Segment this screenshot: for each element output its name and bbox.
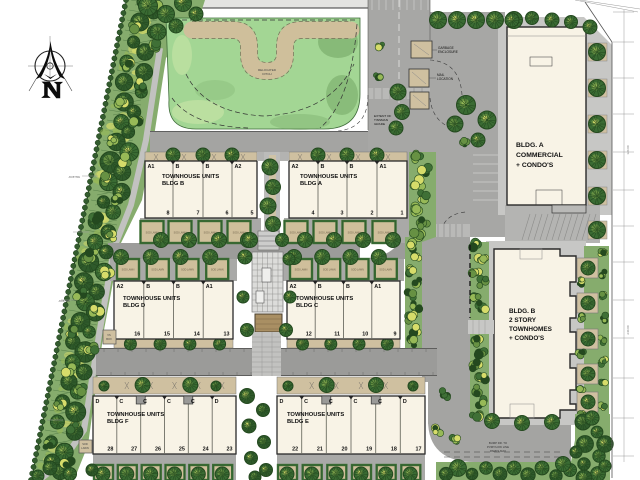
svg-text:C: C [143, 399, 147, 405]
svg-text:DITCH: DITCH [262, 72, 271, 76]
svg-text:6: 6 [226, 211, 229, 217]
svg-text:TOWNHOUSE UNITS: TOWNHOUSE UNITS [123, 296, 180, 302]
svg-text:B: B [176, 284, 180, 290]
svg-text:GRADE: GRADE [374, 122, 385, 126]
svg-text:A1: A1 [374, 284, 381, 290]
svg-text:TOWNHOUSE UNITS: TOWNHOUSE UNITS [300, 174, 357, 180]
svg-text:10: 10 [362, 332, 368, 338]
svg-text:BLDG E: BLDG E [287, 419, 309, 425]
svg-text:21: 21 [317, 447, 323, 453]
svg-text:B: B [146, 284, 150, 290]
svg-text:BLDG D: BLDG D [123, 303, 145, 309]
svg-text:D: D [96, 399, 100, 405]
svg-text:C: C [304, 399, 308, 405]
svg-text:BLDG. A: BLDG. A [516, 142, 544, 149]
svg-text:TOWNHOUSE UNITS: TOWNHOUSE UNITS [107, 412, 164, 418]
svg-text:TOWNHOUSE UNITS: TOWNHOUSE UNITS [162, 174, 219, 180]
svg-text:VS: VS [107, 333, 111, 337]
svg-text:BLDG. B: BLDG. B [509, 308, 536, 315]
svg-text:20: 20 [342, 447, 348, 453]
svg-text:A1: A1 [148, 164, 155, 170]
svg-text:B: B [346, 284, 350, 290]
svg-text:COMMERCIAL: COMMERCIAL [516, 152, 563, 159]
svg-text:B: B [321, 164, 325, 170]
svg-text:B: B [350, 164, 354, 170]
svg-text:BLDG A: BLDG A [300, 181, 323, 187]
svg-text:7: 7 [197, 211, 200, 217]
svg-text:18: 18 [391, 447, 397, 453]
svg-text:17: 17 [416, 447, 422, 453]
svg-text:3: 3 [341, 211, 344, 217]
svg-text:SOD LAWN: SOD LAWN [211, 269, 224, 272]
svg-text:28: 28 [107, 447, 113, 453]
svg-text:240.00: 240.00 [626, 325, 630, 335]
svg-text:D: D [280, 399, 284, 405]
svg-text:LAWN: LAWN [81, 446, 89, 450]
svg-text:+ CONDO'S: + CONDO'S [516, 162, 554, 169]
svg-text:D: D [215, 399, 219, 405]
svg-text:PARKS MAX: PARKS MAX [490, 449, 506, 453]
svg-text:A2: A2 [235, 164, 242, 170]
svg-text:27: 27 [131, 447, 137, 453]
svg-text:SOD: SOD [82, 442, 88, 446]
svg-text:2: 2 [371, 211, 374, 217]
svg-text:A1: A1 [380, 164, 387, 170]
svg-text:120.00: 120.00 [626, 145, 630, 155]
svg-text:TOWNHOMES: TOWNHOMES [509, 326, 553, 333]
svg-text:A5 BTSW: A5 BTSW [69, 175, 81, 179]
svg-text:A1: A1 [206, 284, 213, 290]
svg-text:25: 25 [179, 447, 185, 453]
svg-text:TOWNHOUSE UNITS: TOWNHOUSE UNITS [296, 296, 353, 302]
svg-text:19: 19 [366, 447, 372, 453]
svg-text:C: C [354, 399, 358, 405]
svg-text:12: 12 [306, 332, 312, 338]
svg-text:22: 22 [292, 447, 298, 453]
svg-text:9: 9 [394, 332, 397, 338]
svg-text:26: 26 [155, 447, 161, 453]
svg-text:+ CONDO'S: + CONDO'S [509, 335, 545, 342]
svg-text:BLDG C: BLDG C [296, 303, 319, 309]
svg-text:B: B [176, 164, 180, 170]
svg-text:SOD LAWN: SOD LAWN [379, 269, 392, 272]
svg-text:5: 5 [251, 211, 254, 217]
svg-text:C: C [167, 399, 171, 405]
svg-text:SOD LAWN: SOD LAWN [151, 269, 164, 272]
svg-text:SOD LAWN: SOD LAWN [122, 269, 135, 272]
svg-text:B: B [206, 164, 210, 170]
svg-text:4: 4 [312, 211, 315, 217]
svg-text:C: C [378, 399, 382, 405]
svg-text:C: C [119, 399, 123, 405]
svg-text:TOWNHOUSE UNITS: TOWNHOUSE UNITS [287, 412, 344, 418]
svg-text:D: D [403, 399, 407, 405]
svg-text:13: 13 [224, 332, 230, 338]
svg-text:B: B [318, 284, 322, 290]
svg-text:15: 15 [164, 332, 170, 338]
svg-text:SOD LAWN: SOD LAWN [351, 269, 364, 272]
svg-text:SOD LAWN: SOD LAWN [181, 269, 194, 272]
svg-text:11: 11 [334, 332, 340, 338]
svg-text:A2: A2 [292, 164, 299, 170]
svg-text:C: C [191, 399, 195, 405]
svg-text:2 STORY: 2 STORY [509, 317, 537, 324]
svg-text:1: 1 [401, 211, 404, 217]
svg-text:BLDG F: BLDG F [107, 419, 129, 425]
svg-text:C: C [329, 399, 333, 405]
svg-text:14: 14 [194, 332, 200, 338]
svg-text:A2: A2 [117, 284, 124, 290]
svg-text:24: 24 [203, 447, 209, 453]
svg-text:SOD LAWN: SOD LAWN [295, 269, 308, 272]
svg-text:BOX: BOX [106, 337, 112, 341]
svg-text:16: 16 [134, 332, 140, 338]
svg-text:23: 23 [226, 447, 232, 453]
svg-text:SOD LAWN: SOD LAWN [323, 269, 336, 272]
svg-text:ENCLOSURE: ENCLOSURE [438, 50, 458, 54]
svg-text:A2: A2 [290, 284, 297, 290]
svg-text:8: 8 [167, 211, 170, 217]
svg-text:BLDG B: BLDG B [162, 181, 184, 187]
svg-text:A5 BTSW: A5 BTSW [59, 299, 71, 303]
svg-text:LOCATION: LOCATION [437, 77, 454, 81]
